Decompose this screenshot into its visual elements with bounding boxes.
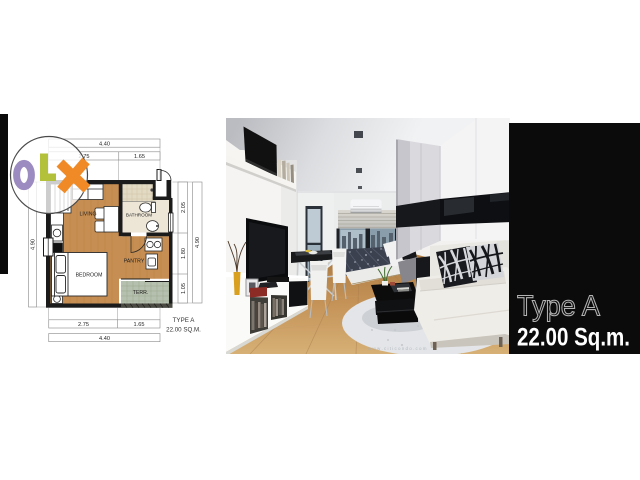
svg-text:4.90: 4.90 — [195, 237, 201, 248]
svg-text:22.00 Sq.m.: 22.00 Sq.m. — [517, 324, 630, 352]
svg-text:4.40: 4.40 — [99, 336, 110, 342]
svg-text:1.05: 1.05 — [181, 283, 187, 294]
svg-text:LIVING: LIVING — [79, 212, 96, 218]
svg-text:w w w . c i t i c o n d o . c: w w w . c i t i c o n d o . c o m — [368, 346, 427, 351]
svg-text:PANTRY: PANTRY — [124, 259, 145, 265]
svg-text:BATHROOM: BATHROOM — [126, 213, 152, 218]
svg-text:1.80: 1.80 — [181, 248, 187, 259]
svg-text:1.65: 1.65 — [134, 322, 145, 328]
svg-text:Type A: Type A — [517, 291, 601, 323]
svg-text:TYPE A: TYPE A — [173, 317, 196, 324]
svg-text:4.90: 4.90 — [31, 239, 37, 250]
svg-text:22.00 SQ.M.: 22.00 SQ.M. — [166, 327, 201, 334]
svg-text:4.40: 4.40 — [99, 141, 110, 147]
svg-text:BEDROOM: BEDROOM — [76, 273, 103, 279]
svg-text:2.75: 2.75 — [78, 322, 89, 328]
svg-text:TERR.: TERR. — [133, 290, 149, 296]
svg-text:2.05: 2.05 — [181, 202, 187, 213]
svg-text:1.65: 1.65 — [134, 154, 145, 160]
